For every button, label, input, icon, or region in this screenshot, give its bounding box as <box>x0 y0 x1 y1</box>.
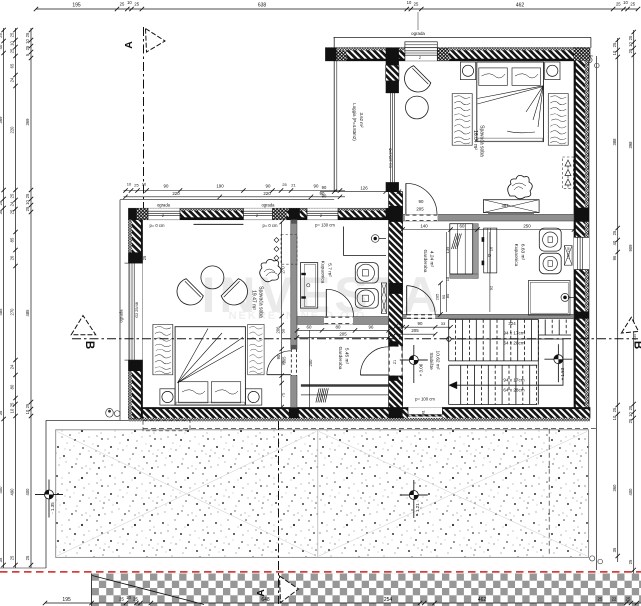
svg-text:205: 205 <box>411 328 419 333</box>
svg-text:90: 90 <box>164 184 169 189</box>
svg-text:25: 25 <box>598 597 603 602</box>
svg-text:25: 25 <box>0 200 3 205</box>
svg-text:Kupaonica: Kupaonica <box>320 261 326 284</box>
svg-text:B: B <box>632 341 641 349</box>
svg-text:369: 369 <box>0 116 3 124</box>
svg-text:10: 10 <box>25 409 30 414</box>
svg-text:60: 60 <box>460 223 465 228</box>
svg-text:25: 25 <box>612 230 617 235</box>
svg-text:270: 270 <box>10 308 15 316</box>
svg-text:90: 90 <box>441 294 446 299</box>
svg-text:G1 125/245: G1 125/245 <box>389 148 393 168</box>
svg-text:25: 25 <box>25 403 30 408</box>
svg-text:25: 25 <box>25 45 30 50</box>
svg-text:25: 25 <box>10 555 15 560</box>
svg-text:324: 324 <box>508 321 516 326</box>
svg-text:25: 25 <box>612 42 617 47</box>
svg-text:25: 25 <box>10 193 15 198</box>
svg-text:25: 25 <box>133 597 138 602</box>
svg-text:205: 205 <box>434 293 439 300</box>
svg-text:16: 16 <box>488 246 493 251</box>
svg-text:25: 25 <box>414 2 419 7</box>
svg-text:25: 25 <box>282 182 287 187</box>
svg-text:96: 96 <box>612 255 617 260</box>
svg-text:10: 10 <box>628 42 633 47</box>
svg-text:ograda: ograda <box>119 309 124 323</box>
svg-text:22: 22 <box>612 597 617 602</box>
svg-text:90: 90 <box>266 184 271 189</box>
svg-text:Kupaonica: Kupaonica <box>513 244 519 267</box>
svg-text:10: 10 <box>612 50 617 55</box>
svg-text:400: 400 <box>0 486 3 494</box>
svg-text:60: 60 <box>307 324 312 329</box>
svg-text:462: 462 <box>516 3 525 9</box>
svg-text:25: 25 <box>628 48 633 53</box>
svg-text:90: 90 <box>322 185 327 190</box>
svg-text:50: 50 <box>280 328 285 333</box>
svg-text:10: 10 <box>127 0 132 5</box>
svg-text:220: 220 <box>10 126 15 134</box>
svg-text:90: 90 <box>314 184 319 189</box>
svg-text:16: 16 <box>142 182 147 187</box>
svg-text:4.24 m²: 4.24 m² <box>429 251 435 268</box>
svg-text:75: 75 <box>280 392 285 397</box>
svg-text:10: 10 <box>623 0 628 5</box>
svg-text:p= 0 cm: p= 0 cm <box>149 223 165 228</box>
svg-text:94 x 17cm: 94 x 17cm <box>503 331 524 336</box>
svg-text:M1: M1 <box>421 409 426 415</box>
svg-text:25: 25 <box>628 35 633 40</box>
svg-text:139: 139 <box>445 246 450 253</box>
svg-text:25: 25 <box>628 418 633 423</box>
svg-text:25: 25 <box>10 402 15 407</box>
svg-text:25: 25 <box>25 206 30 211</box>
svg-text:25: 25 <box>612 407 617 412</box>
svg-text:64 x 28cm: 64 x 28cm <box>503 388 524 393</box>
svg-text:A: A <box>123 41 135 49</box>
svg-text:ograda: ograda <box>411 31 425 36</box>
svg-text:40: 40 <box>0 44 3 49</box>
svg-text:220: 220 <box>172 191 180 196</box>
svg-text:+ 1.53: + 1.53 <box>560 367 565 380</box>
svg-text:Z1: Z1 <box>393 360 397 364</box>
svg-text:10: 10 <box>126 595 131 600</box>
svg-text:25: 25 <box>616 2 621 7</box>
svg-text:909: 909 <box>628 244 633 252</box>
svg-text:485: 485 <box>0 308 3 316</box>
svg-text:3.62 m²: 3.62 m² <box>359 113 364 128</box>
svg-text:94 x 17cm: 94 x 17cm <box>503 378 524 383</box>
svg-text:Garderoba: Garderoba <box>337 347 343 370</box>
svg-text:Stubište: Stubište <box>428 352 434 370</box>
svg-text:24: 24 <box>10 364 15 369</box>
svg-text:Spavaća soba: Spavaća soba <box>258 286 264 318</box>
svg-text:B: B <box>83 341 95 349</box>
svg-text:205: 205 <box>416 207 424 212</box>
svg-text:26: 26 <box>10 255 15 260</box>
svg-text:5.7 m²: 5.7 m² <box>327 263 333 277</box>
svg-text:25: 25 <box>628 405 633 410</box>
svg-text:15: 15 <box>396 321 401 326</box>
svg-text:ograda: ograda <box>261 202 275 207</box>
svg-text:10: 10 <box>25 200 30 205</box>
svg-text:35: 35 <box>0 410 3 415</box>
svg-text:35: 35 <box>0 557 3 562</box>
svg-text:90: 90 <box>280 360 285 365</box>
svg-text:90: 90 <box>276 354 281 359</box>
svg-text:24: 24 <box>10 77 15 82</box>
svg-text:25: 25 <box>120 2 125 7</box>
svg-text:490: 490 <box>10 488 15 496</box>
svg-text:10: 10 <box>10 408 15 413</box>
svg-text:25: 25 <box>630 2 635 7</box>
svg-text:25: 25 <box>10 209 15 214</box>
svg-text:195: 195 <box>62 597 71 603</box>
svg-text:90: 90 <box>320 191 325 196</box>
svg-text:140: 140 <box>420 223 428 228</box>
svg-text:92: 92 <box>488 285 493 290</box>
svg-text:10: 10 <box>25 39 30 44</box>
svg-text:ograda: ograda <box>157 202 171 207</box>
svg-text:195: 195 <box>72 3 81 9</box>
svg-text:638: 638 <box>258 3 267 9</box>
svg-text:24: 24 <box>10 201 15 206</box>
svg-text:p= 130 cm: p= 130 cm <box>315 223 335 228</box>
svg-text:206: 206 <box>275 326 280 334</box>
svg-text:21: 21 <box>291 183 296 188</box>
svg-text:40: 40 <box>612 240 617 245</box>
svg-text:- 1.35: - 1.35 <box>50 502 55 514</box>
svg-text:25: 25 <box>25 555 30 560</box>
svg-text:18: 18 <box>445 276 450 281</box>
svg-text:80: 80 <box>10 384 15 389</box>
svg-text:387: 387 <box>502 203 510 208</box>
svg-text:p= 100 cm: p= 100 cm <box>415 397 435 402</box>
svg-text:126: 126 <box>360 186 368 191</box>
svg-text:10: 10 <box>628 412 633 417</box>
svg-text:388: 388 <box>612 138 617 146</box>
svg-text:Loggia (P=4.83m2): Loggia (P=4.83m2) <box>352 103 357 141</box>
svg-text:10.62 m²: 10.62 m² <box>435 351 441 370</box>
svg-text:25: 25 <box>142 255 147 260</box>
svg-text:25: 25 <box>0 33 3 38</box>
svg-text:400: 400 <box>628 488 633 496</box>
svg-text:Garderoba: Garderoba <box>422 250 428 273</box>
svg-text:80: 80 <box>336 324 341 329</box>
svg-text:25: 25 <box>119 597 124 602</box>
svg-text:200: 200 <box>308 359 313 367</box>
svg-text:25: 25 <box>626 597 631 602</box>
svg-text:35: 35 <box>612 547 617 552</box>
svg-text:+ 3.06: + 3.06 <box>419 363 424 376</box>
svg-text:369: 369 <box>25 118 30 126</box>
svg-text:G2 25/48: G2 25/48 <box>135 302 139 318</box>
svg-text:360: 360 <box>612 484 617 492</box>
svg-text:- 1.21: - 1.21 <box>415 503 420 515</box>
svg-text:25: 25 <box>25 193 30 198</box>
svg-text:25: 25 <box>390 186 395 191</box>
svg-text:25: 25 <box>10 32 15 37</box>
svg-text:25: 25 <box>134 183 139 188</box>
svg-text:10: 10 <box>10 41 15 46</box>
svg-text:6.63 m²: 6.63 m² <box>520 244 526 261</box>
svg-text:398: 398 <box>628 141 633 149</box>
svg-text:25: 25 <box>10 48 15 53</box>
svg-text:25: 25 <box>134 2 139 7</box>
svg-text:10: 10 <box>127 182 132 187</box>
svg-text:220: 220 <box>263 191 271 196</box>
svg-text:96: 96 <box>369 324 374 329</box>
svg-text:205: 205 <box>339 332 347 337</box>
svg-text:648: 648 <box>261 597 270 603</box>
svg-text:85: 85 <box>10 237 15 242</box>
svg-text:254: 254 <box>384 597 393 603</box>
svg-text:10: 10 <box>612 415 617 420</box>
svg-text:65: 65 <box>10 63 15 68</box>
svg-text:270: 270 <box>280 266 285 274</box>
svg-text:33: 33 <box>441 321 446 326</box>
svg-text:250: 250 <box>523 223 531 228</box>
svg-text:190: 190 <box>216 184 224 189</box>
svg-text:35: 35 <box>0 209 3 214</box>
svg-text:64 x 28cm: 64 x 28cm <box>503 341 524 346</box>
svg-text:A: A <box>255 589 267 597</box>
svg-text:10: 10 <box>407 0 412 5</box>
svg-text:25: 25 <box>628 559 633 564</box>
svg-text:90: 90 <box>418 321 423 326</box>
svg-text:400: 400 <box>25 488 30 496</box>
svg-text:485: 485 <box>25 309 30 317</box>
svg-text:462: 462 <box>478 597 487 603</box>
svg-text:19.47 m²: 19.47 m² <box>251 290 257 310</box>
svg-text:p= 0 cm: p= 0 cm <box>262 223 278 228</box>
svg-text:90: 90 <box>419 199 424 204</box>
svg-text:5.45 m²: 5.45 m² <box>344 348 350 365</box>
svg-text:25: 25 <box>25 32 30 37</box>
